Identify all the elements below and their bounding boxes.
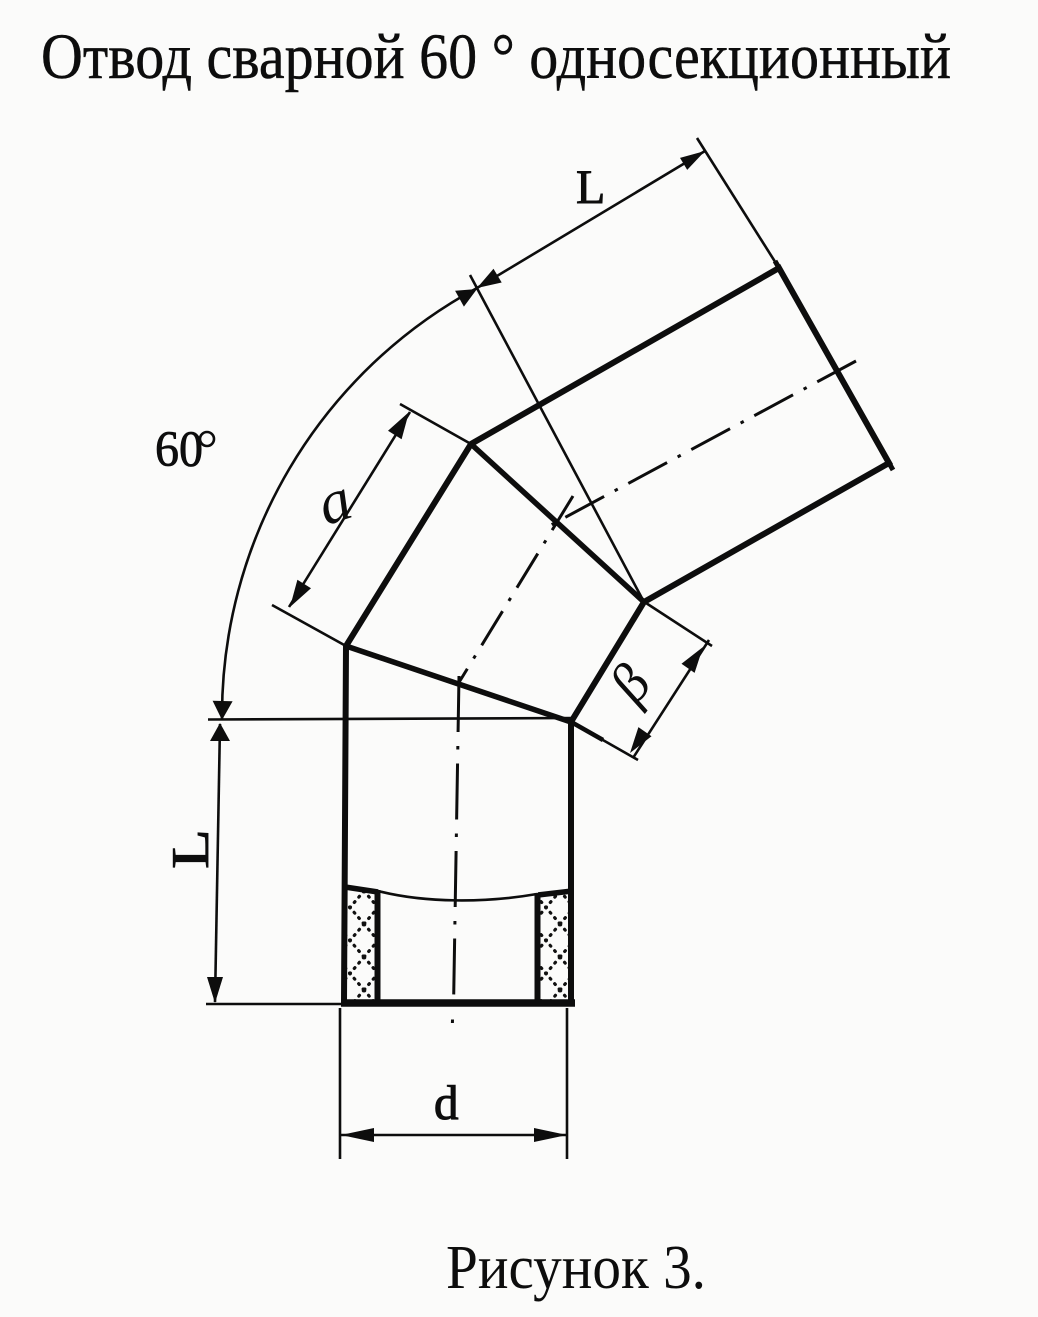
- svg-text:a: a: [309, 465, 359, 539]
- svg-text:Рисунок 3.: Рисунок 3.: [446, 1234, 706, 1302]
- svg-text:d: d: [434, 1075, 459, 1130]
- svg-text:60: 60: [155, 422, 203, 478]
- svg-text:Отвод сварной 60 ° односекцион: Отвод сварной 60 ° односекционный: [41, 21, 951, 93]
- svg-text:L: L: [162, 829, 220, 869]
- svg-text:β: β: [597, 654, 664, 715]
- svg-text:L: L: [576, 161, 605, 214]
